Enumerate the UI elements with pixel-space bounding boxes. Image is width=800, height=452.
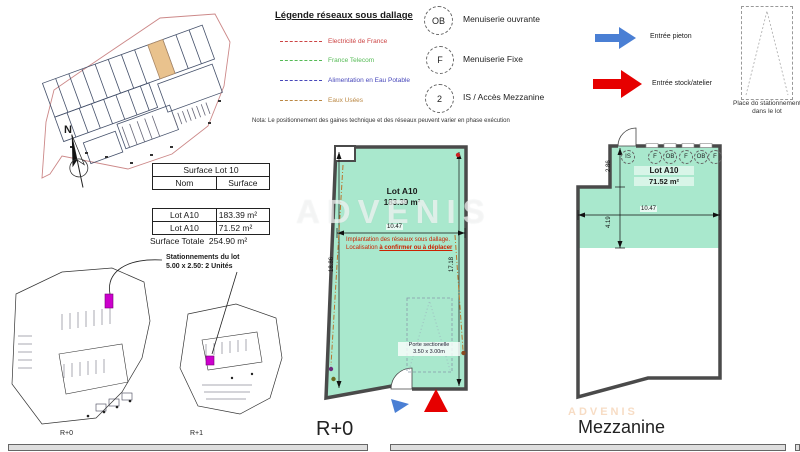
reseau-dot-purple [329,367,333,371]
mezzanine-dim-upper: 2.86 [606,160,612,172]
mezzanine-dim-width: 10.47 [640,206,657,212]
compass-north-label: N [64,124,72,136]
badge-ob1: OB [663,150,677,164]
reseaux-note-prefix: Localisation [346,245,379,251]
mezzanine-lot-area: 71.52 m² [634,177,694,186]
plan-r0-title: R+0 [316,418,353,441]
parking-highlight-r0 [105,294,113,308]
surface-table-header: Surface Lot 10 Nom Surface [152,163,270,190]
badge-f1: F [648,150,662,164]
badge-f3: F [708,150,722,164]
site-detail-dots [70,100,221,164]
reseaux-note-line2: Localisation à confirmer ou à déplacer [346,244,452,252]
surface-table-title: Surface Lot 10 [153,164,269,176]
surface-table-body: Lot A10 183.39 m² Lot A10 71.52 m² [152,208,270,235]
reseaux-note-line1: Implantation des réseaux sous dallage. [346,236,452,244]
door-label-line2: 3.50 x 3.00m [398,349,460,356]
pieton-arrow-icon [595,27,637,49]
highlighted-lot [148,40,175,79]
symbol-f-label: Menuiserie Fixe [463,54,523,64]
parking-place-symbol [741,6,793,100]
table-title-row: Surface Lot 10 [153,164,269,177]
reseau-dot-brown [461,351,465,355]
parking-caption: Place do stationnement dans le lot [726,100,800,116]
symbol-2-circle: 2 [425,84,454,113]
door-label-line1: Porte sectionelle [398,342,460,349]
edf-line-swatch [280,41,322,42]
col-surface: Surface [217,177,269,189]
symbol-f-text: F [437,55,443,65]
legend-item-label: Eaux Usées [328,97,363,104]
reseaux-note-underlined: à confirmer ou à déplacer [379,245,452,251]
badge-is: IS [621,150,635,164]
mini-r0-label: R+0 [60,430,73,437]
legend-item-label: France Telecom [328,57,374,64]
reseau-dot-olive [331,377,335,381]
mezzanine-title: Mezzanine [578,417,665,438]
mini-r1-label: R+1 [190,430,203,437]
row-0-surface: 183.39 m² [217,209,269,221]
watermark-text: ADVENIS [296,193,492,231]
plan-r0-floor [326,147,466,398]
floor-plan-sheet: N Légende réseaux sous dallage Electrici… [0,0,800,452]
telecom-line-swatch [280,60,322,61]
row-0-nom: Lot A10 [153,209,217,221]
bottom-bar-edge [795,444,800,451]
legend-item-edf: Electricité de France [280,38,387,45]
col-nom: Nom [153,177,217,189]
plan-r0-dim-right: 17.18 [449,257,455,272]
reseau-dot-red [456,153,460,157]
stationnements-note: Stationnements du lot 5.00 x 2.50: 2 Uni… [166,253,240,271]
reseaux-note: Implantation des réseaux sous dallage. L… [346,236,452,252]
bottom-bar-left [8,444,368,451]
mezzanine-lot-name: Lot A10 [634,166,694,175]
table-row: Lot A10 183.39 m² [153,209,269,222]
legend-item-telecom: France Telecom [280,57,374,64]
parking-highlight-r1 [206,356,214,365]
legend-item-label: Electricité de France [328,38,387,45]
legend-item-label: Alimentation en Eau Potable [328,77,410,84]
site-boundary-line [42,14,230,178]
symbol-2-text: 2 [437,94,442,104]
row-1-surface: 71.52 m² [217,222,269,234]
symbol-ob-circle: OB [424,6,453,35]
mezzanine-dim-lower: 4.19 [606,216,612,228]
parking-caption-line2: dans le lot [726,108,800,116]
legend-nota: Nota: Le positionnement des gaines techn… [252,118,510,124]
mezzanine-door-swing-icon [618,128,636,146]
table-row: Lot A10 71.52 m² [153,222,269,234]
row-1-nom: Lot A10 [153,222,217,234]
pieton-entry-label: Entrée pieton [650,33,692,40]
eau-line-swatch [280,80,322,81]
legend-item-eaux-usees: Eaux Usées [280,97,363,104]
symbol-2-label: IS / Accès Mezzanine [463,92,544,102]
plan-r0-drawing [300,140,490,420]
surface-total: Surface Totale 254.90 m² [150,236,247,246]
stationnements-line1: Stationnements du lot [166,253,240,262]
mini-plan-r1-sketch [172,300,286,424]
eaux-usees-line-swatch [280,100,322,101]
bottom-bar-right [390,444,786,451]
symbol-ob-text: OB [432,16,445,26]
surface-total-label: Surface Totale [150,236,204,246]
watermark-text-small: ADVENIS [568,406,638,418]
badge-ob2: OB [694,150,708,164]
legend-item-eau: Alimentation en Eau Potable [280,77,410,84]
badge-f2: F [679,150,693,164]
stock-arrow-icon [593,70,643,98]
parking-triangle-icon [742,7,792,99]
plan-r0-dim-left: 18.86 [329,257,335,272]
sectional-door-label: Porte sectionelle 3.50 x 3.00m [398,342,460,356]
surface-total-value: 254.90 m² [209,236,247,246]
symbol-f-circle: F [426,46,454,74]
stock-entry-label: Entrée stock/atelier [652,80,712,87]
parking-caption-line1: Place do stationnement [726,100,800,108]
building-units [42,25,233,170]
stationnements-line2: 5.00 x 2.50: 2 Unités [166,262,240,271]
legend-title: Légende réseaux sous dallage [275,10,413,21]
mini-plan-r0-sketch [4,266,160,438]
symbol-ob-label: Menuiserie ouvrante [463,14,540,24]
table-columns-row: Nom Surface [153,177,269,189]
